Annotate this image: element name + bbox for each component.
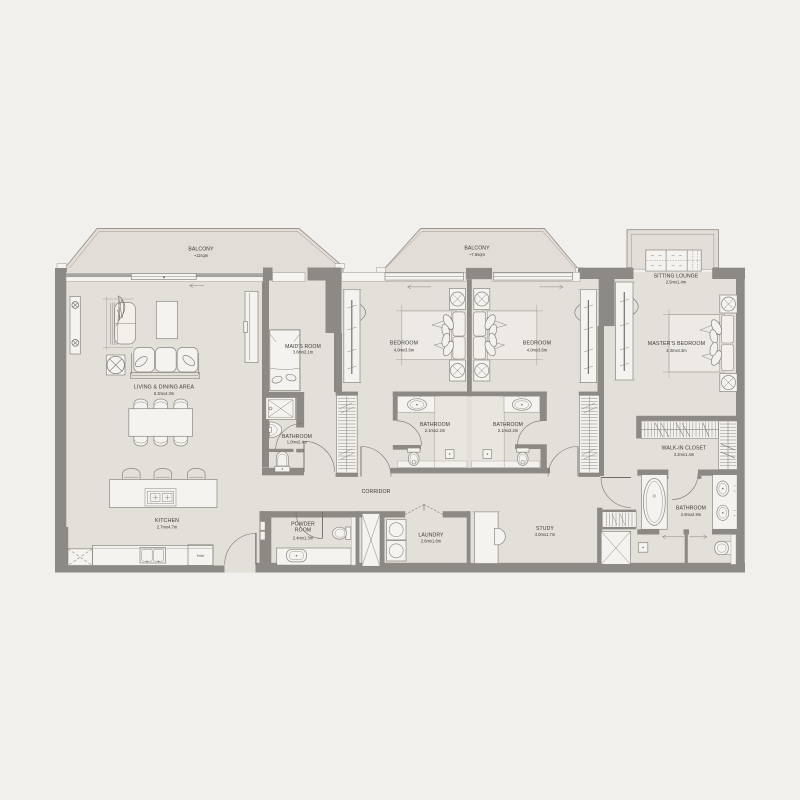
svg-text:3.2mx1.4m: 3.2mx1.4m (674, 452, 695, 457)
svg-text:2.1mx2.2m: 2.1mx2.2m (425, 428, 446, 433)
svg-text:4.0mx1.7m: 4.0mx1.7m (535, 532, 556, 537)
svg-text:ROOM: ROOM (295, 528, 311, 534)
svg-text:3.6mx2.1m: 3.6mx2.1m (293, 349, 314, 354)
svg-text:BEDROOM: BEDROOM (523, 341, 551, 347)
svg-text:4.0mx3.6m: 4.0mx3.6m (527, 348, 548, 353)
svg-text:BALCONY: BALCONY (188, 247, 214, 253)
svg-text:BALCONY: BALCONY (464, 246, 490, 252)
svg-text:1.0mx2.4m: 1.0mx2.4m (287, 440, 308, 445)
svg-text:fridge: fridge (197, 554, 205, 558)
svg-text:BATHROOM: BATHROOM (676, 506, 706, 512)
svg-text:2.1mx2.2m: 2.1mx2.2m (498, 428, 519, 433)
svg-text:2.6mx1.6m: 2.6mx1.6m (421, 538, 442, 543)
svg-text:4.3mx4.3m: 4.3mx4.3m (666, 348, 687, 353)
svg-text:6.3mx4.3m: 6.3mx4.3m (154, 391, 175, 396)
svg-text:~11sqm: ~11sqm (194, 253, 209, 258)
svg-text:CORRIDOR: CORRIDOR (362, 489, 391, 495)
svg-text:WALK-IN CLOSET: WALK-IN CLOSET (662, 445, 707, 451)
svg-text:MASTER'S BEDROOM: MASTER'S BEDROOM (648, 341, 705, 347)
svg-text:2.5mx1.4m: 2.5mx1.4m (666, 280, 687, 285)
svg-text:4.0mx3.6m: 4.0mx3.6m (394, 348, 415, 353)
svg-text:BEDROOM: BEDROOM (390, 341, 418, 347)
svg-text:KITCHEN: KITCHEN (155, 518, 179, 524)
svg-text:2.7mx4.7m: 2.7mx4.7m (157, 525, 178, 530)
svg-text:LIVING & DINING AREA: LIVING & DINING AREA (134, 385, 195, 391)
svg-text:2.8mx2.9m: 2.8mx2.9m (681, 512, 702, 517)
svg-text:2.4mx1.3m: 2.4mx1.3m (293, 536, 314, 541)
svg-text:~7.5sqm: ~7.5sqm (469, 252, 486, 257)
